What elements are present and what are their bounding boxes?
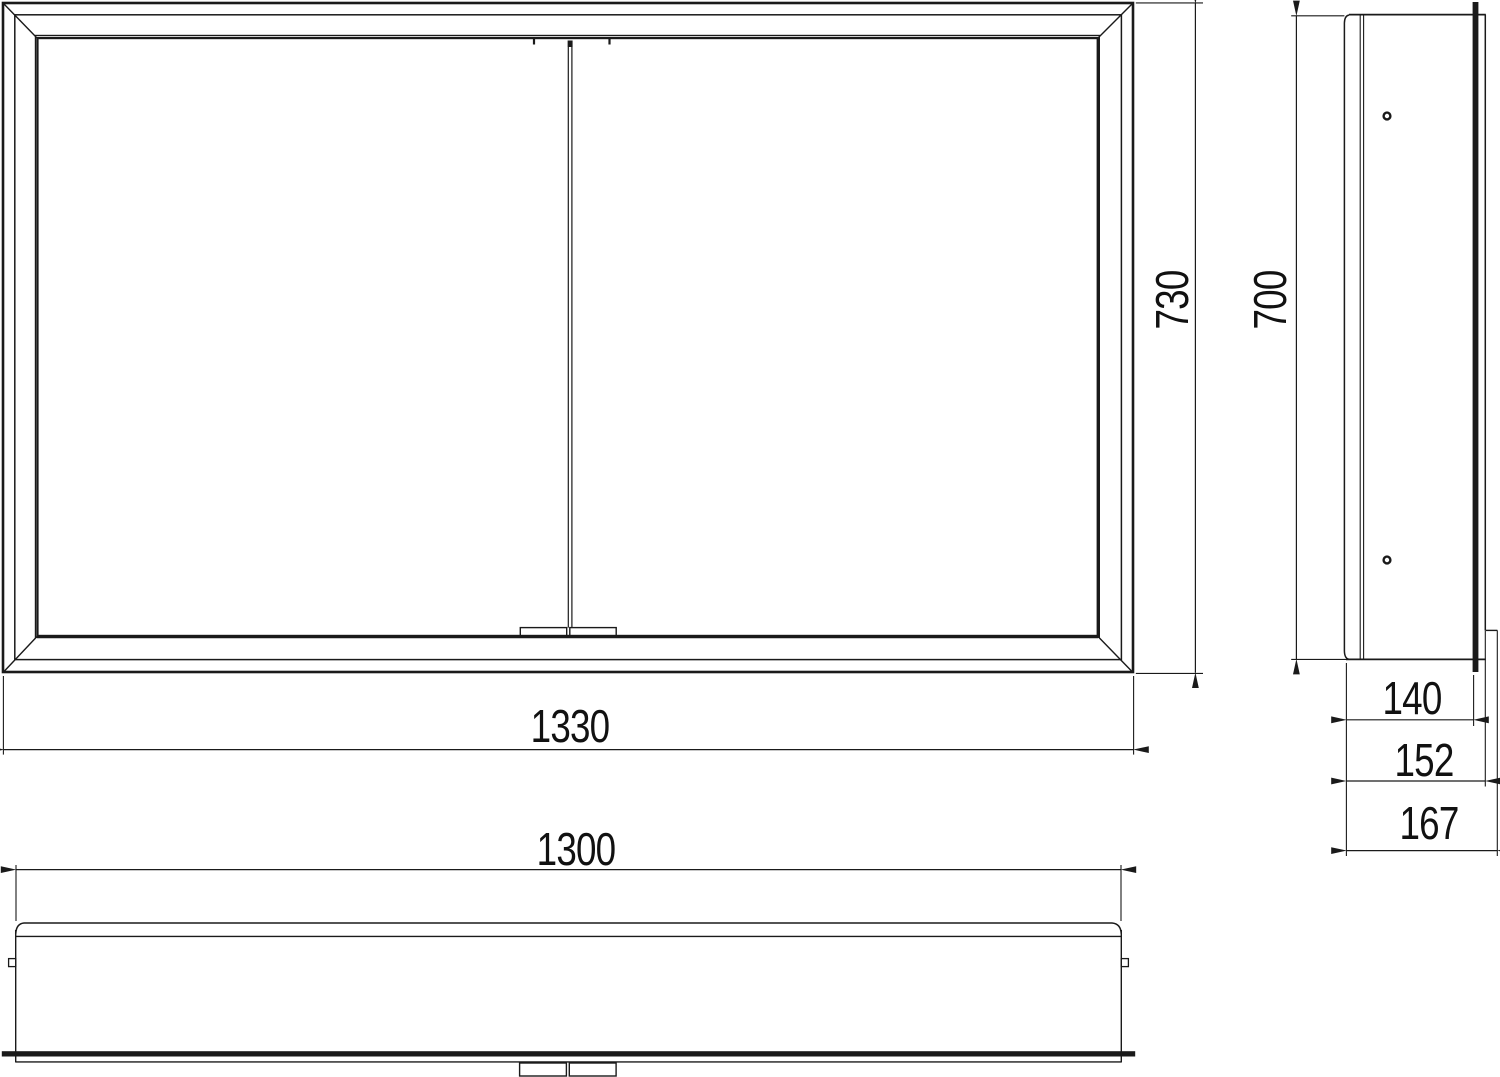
front-view (3, 3, 1133, 672)
dim-label-front-height: 730 (1145, 271, 1199, 330)
dim-label-side-height: 700 (1243, 271, 1297, 330)
miter-bottom-left (4, 637, 37, 672)
technical-drawing-canvas: 1330 730 700 140 152 167 1300 (0, 0, 1500, 1077)
plan-handle-right (569, 1063, 616, 1076)
front-mirror-shade (35, 35, 1099, 637)
mounting-hole-bottom (1384, 557, 1391, 564)
plan-back-edge (16, 923, 1122, 934)
front-height-dimension (1136, 3, 1203, 674)
miter-top-left (4, 4, 37, 38)
side-view (1344, 2, 1497, 672)
plan-wall-bracket-right (1121, 959, 1128, 967)
miter-bottom-right (1098, 637, 1132, 672)
dim-label-depth-overall: 167 (1400, 796, 1459, 850)
miter-top-right (1098, 4, 1132, 38)
plan-wall-bracket-left (9, 959, 16, 967)
dim-label-depth-body: 140 (1383, 671, 1442, 725)
side-height-dimension (1291, 16, 1346, 660)
dim-label-front-width: 1330 (531, 699, 610, 753)
door-split-hinge-mark (568, 41, 573, 48)
dim-label-depth-frame: 152 (1395, 733, 1454, 787)
plan-mirror-front (2, 1051, 1135, 1056)
mounting-hole-top (1384, 113, 1391, 120)
dim-label-carcass-width: 1300 (537, 822, 616, 876)
plan-handle-left (520, 1063, 567, 1076)
plan-view (2, 923, 1135, 1076)
side-back-strip-edge (1344, 15, 1349, 659)
drawing-linework (0, 0, 1500, 1077)
side-mirror-door (1473, 2, 1479, 672)
front-mirror-opening (37, 38, 1097, 636)
